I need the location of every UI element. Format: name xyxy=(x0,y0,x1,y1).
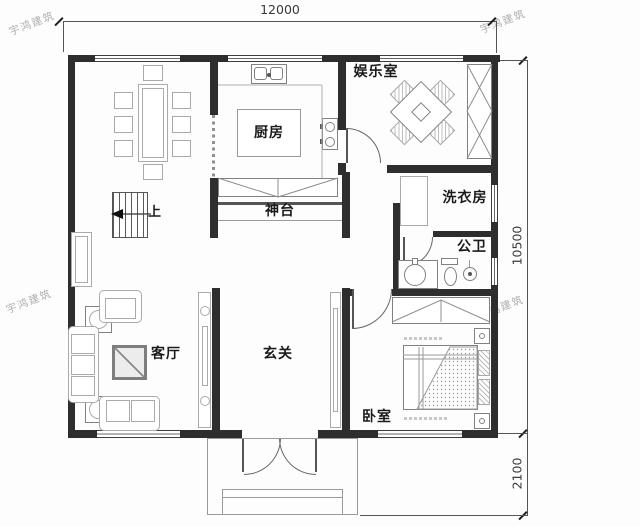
dim-ext xyxy=(496,22,497,53)
dim-ext xyxy=(498,433,528,434)
sink-basin xyxy=(254,67,267,80)
stove-burner xyxy=(325,122,335,132)
stove-burner xyxy=(325,137,335,147)
wall-bath-divider xyxy=(433,231,491,237)
dim-ext xyxy=(63,22,64,52)
sofa-cushion xyxy=(131,400,155,422)
room-label-altar: 神台 xyxy=(246,203,314,220)
sliding-door[interactable] xyxy=(212,115,215,178)
room-label-entertainment: 娱乐室 xyxy=(348,64,404,81)
dining-table-inner xyxy=(142,88,164,158)
wall xyxy=(180,55,228,62)
floor-plan: 宇鸿建筑 宇鸿建筑 宇鸿建筑 宇鸿建筑 12000 10500 2100 xyxy=(0,0,640,526)
stairs-up-label: 上 xyxy=(146,204,164,221)
bedroom-door-swing xyxy=(352,289,392,329)
room-label-living: 客厅 xyxy=(146,346,186,363)
window xyxy=(97,430,180,438)
basin-faucet xyxy=(412,258,418,265)
dining-chair xyxy=(172,92,191,109)
wall xyxy=(180,430,242,438)
window xyxy=(378,430,462,438)
wall xyxy=(318,430,378,438)
wall-kitchen-left xyxy=(210,55,218,115)
sofa-cushion xyxy=(71,355,95,375)
dining-chair xyxy=(172,140,191,157)
cabinet-decor xyxy=(200,306,210,316)
armchair-seat xyxy=(105,298,136,319)
altar-cabinet-front xyxy=(218,220,342,221)
dining-chair xyxy=(114,116,133,133)
dining-chair xyxy=(114,92,133,109)
dim-line-right xyxy=(527,60,528,515)
porch-steps xyxy=(222,489,343,515)
dining-chair xyxy=(143,164,163,180)
bed-texture-line xyxy=(404,337,444,340)
cabinet-inner xyxy=(333,308,338,412)
watermark: 宇鸿建筑 xyxy=(7,8,57,39)
dim-height-label: 10500 xyxy=(510,218,525,274)
stove-knob xyxy=(320,139,323,144)
bedroom-wardrobe xyxy=(392,297,490,324)
tv-cabinet-inner xyxy=(75,236,88,283)
window xyxy=(380,55,463,62)
dining-chair xyxy=(172,116,191,133)
wall xyxy=(491,285,498,438)
wall-entertainment-bottom xyxy=(387,165,498,173)
sink-faucet xyxy=(267,73,271,77)
entertainment-wardrobe xyxy=(467,64,492,159)
bed-texture-line xyxy=(404,417,448,420)
cabinet-decor xyxy=(200,396,210,406)
window xyxy=(228,55,322,62)
nightstand-lamp xyxy=(479,333,485,339)
stove-knob xyxy=(320,124,323,129)
wall-altar-stub xyxy=(342,172,350,238)
wall-bedroom-top xyxy=(392,289,491,296)
dim-ext xyxy=(360,515,528,516)
window xyxy=(491,258,498,285)
dim-porch-label: 2100 xyxy=(510,446,525,502)
wall xyxy=(322,55,380,62)
wall-foyer-right xyxy=(342,288,350,430)
wall-foyer-left xyxy=(212,288,220,430)
wall xyxy=(491,222,498,258)
bed xyxy=(403,345,478,410)
staircase xyxy=(112,192,148,238)
toilet-tank xyxy=(441,258,458,265)
kitchen-lower-counter xyxy=(218,178,338,197)
watermark: 宇鸿建筑 xyxy=(4,286,54,317)
shower-head-dot xyxy=(468,272,472,276)
wall xyxy=(462,430,498,438)
washbasin xyxy=(404,264,426,286)
cabinet-inner xyxy=(202,326,208,386)
sofa-cushion xyxy=(106,400,130,422)
porch-step-line xyxy=(222,497,343,498)
pillow xyxy=(478,379,490,405)
pillow xyxy=(478,350,490,376)
coffee-table xyxy=(112,345,147,380)
dim-width-label: 12000 xyxy=(240,2,320,17)
room-label-bedroom: 卧室 xyxy=(357,409,397,426)
dim-line-top xyxy=(63,21,497,22)
room-label-bathroom: 公卫 xyxy=(452,239,492,256)
nightstand-lamp xyxy=(479,418,485,424)
wall-kitchen-left xyxy=(210,178,218,238)
window xyxy=(95,55,180,62)
entertainment-door-swing xyxy=(346,128,381,163)
room-label-kitchen: 厨房 xyxy=(237,109,301,157)
dining-chair xyxy=(143,65,163,81)
washer-counter xyxy=(400,176,428,226)
wall-kitchen-right xyxy=(338,55,346,130)
room-label-foyer: 玄关 xyxy=(258,346,298,363)
dim-ext xyxy=(498,60,528,61)
room-label-laundry: 洗衣房 xyxy=(439,190,491,207)
sink-basin xyxy=(270,67,283,80)
window xyxy=(491,185,498,222)
sofa-cushion xyxy=(71,334,95,354)
wall xyxy=(68,430,97,438)
sofa-cushion xyxy=(71,376,95,396)
toilet-bowl xyxy=(444,267,457,286)
dining-chair xyxy=(114,140,133,157)
